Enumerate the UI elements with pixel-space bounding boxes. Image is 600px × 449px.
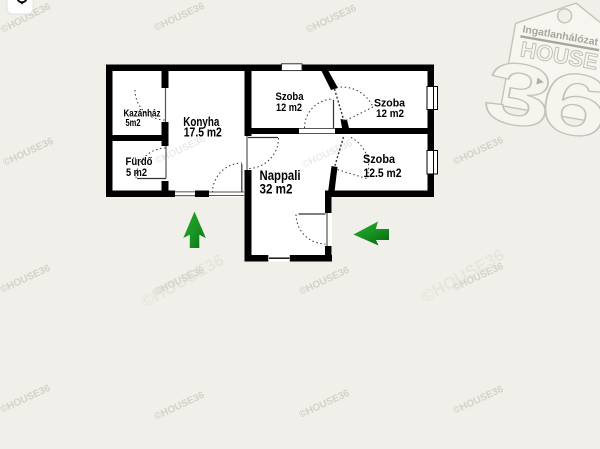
svg-text:5m2: 5m2: [126, 118, 141, 129]
svg-text:Szoba: Szoba: [363, 154, 396, 166]
svg-text:17.5 m2: 17.5 m2: [184, 125, 222, 139]
svg-text:5 m2: 5 m2: [126, 167, 147, 179]
svg-text:12 m2: 12 m2: [276, 102, 302, 114]
svg-text:12 m2: 12 m2: [376, 108, 404, 120]
svg-text:32 m2: 32 m2: [260, 182, 293, 197]
svg-text:12.5 m2: 12.5 m2: [364, 168, 402, 180]
